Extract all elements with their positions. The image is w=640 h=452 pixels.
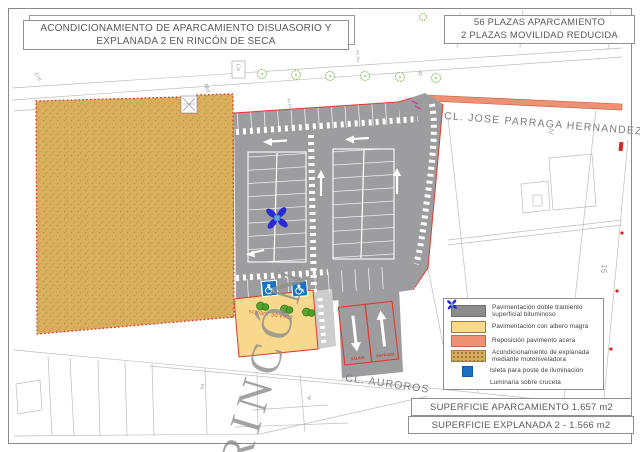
legend: Pavimentación doble tramiento superficia…: [443, 298, 604, 390]
legend-item-luminaria: Luminaria sobre cruceta: [451, 379, 599, 386]
surface-aparcamiento-box: SUPERFICIE APARCAMIENTO 1.657 m2: [411, 398, 632, 416]
legend-swatch-isleta: [462, 366, 473, 377]
plan-sheet: SALIDA ENTRADA ZONA DE JUEGOS: [0, 0, 640, 452]
street-auroros-label: CL. AUROROS: [345, 372, 431, 396]
title-box: ACONDICIONAMIENTO DE APARCAMIENTO DISUAS…: [23, 20, 349, 50]
legend-item-acera: Reposición pavimento acera: [451, 335, 599, 347]
title-line-1: ACONDICIONAMIENTO DE APARCAMIENTO DISUAS…: [40, 22, 331, 35]
street-jose-parraga-label: CL. JOSE PARRAGA HERNANDEZ: [444, 110, 640, 138]
label-ca: Ca: [232, 61, 245, 78]
label-6: 6: [418, 70, 423, 77]
legend-item-bituminoso: Pavimentación doble tramiento superficia…: [451, 304, 599, 318]
legend-item-isleta: Isleta para poste de iluminación: [451, 366, 599, 377]
label-mal: Mal: [202, 82, 211, 94]
legend-swatch-explanada: [451, 350, 486, 362]
legend-swatch-acera: [451, 335, 486, 347]
title-line-2: EXPLANADA 2 EN RINCÓN DE SECA: [96, 35, 275, 48]
label-no-pre-2: No Pre: [355, 49, 361, 63]
pylon-symbol: [181, 96, 197, 113]
label-15: 15: [599, 264, 609, 274]
surface-explanada-box: SUPERFICIE EXPLANADA 2 - 1.566 m2: [408, 416, 634, 434]
label-no-pre-1: No Pre: [286, 96, 294, 110]
label-iv: IV: [546, 128, 554, 136]
capacity-line-1: 56 PLAZAS APARCAMIENTO: [474, 17, 605, 30]
legend-swatch-albero: [451, 321, 486, 333]
label-2: 2: [200, 384, 205, 391]
label-fru: Fru: [32, 71, 43, 83]
label-4: 4: [307, 395, 312, 402]
legend-item-albero: Pavimentación con albero magra: [451, 321, 599, 333]
legend-item-explanada: Acondicionamiento de explanada mediante …: [451, 349, 599, 363]
svg-text:Ca: Ca: [234, 63, 241, 71]
explanada-zone: [36, 94, 234, 334]
capacity-box: 56 PLAZAS APARCAMIENTO 2 PLAZAS MOVILIDA…: [444, 15, 635, 44]
capacity-line-2: 2 PLAZAS MOVILIDAD REDUCIDA: [461, 30, 618, 43]
